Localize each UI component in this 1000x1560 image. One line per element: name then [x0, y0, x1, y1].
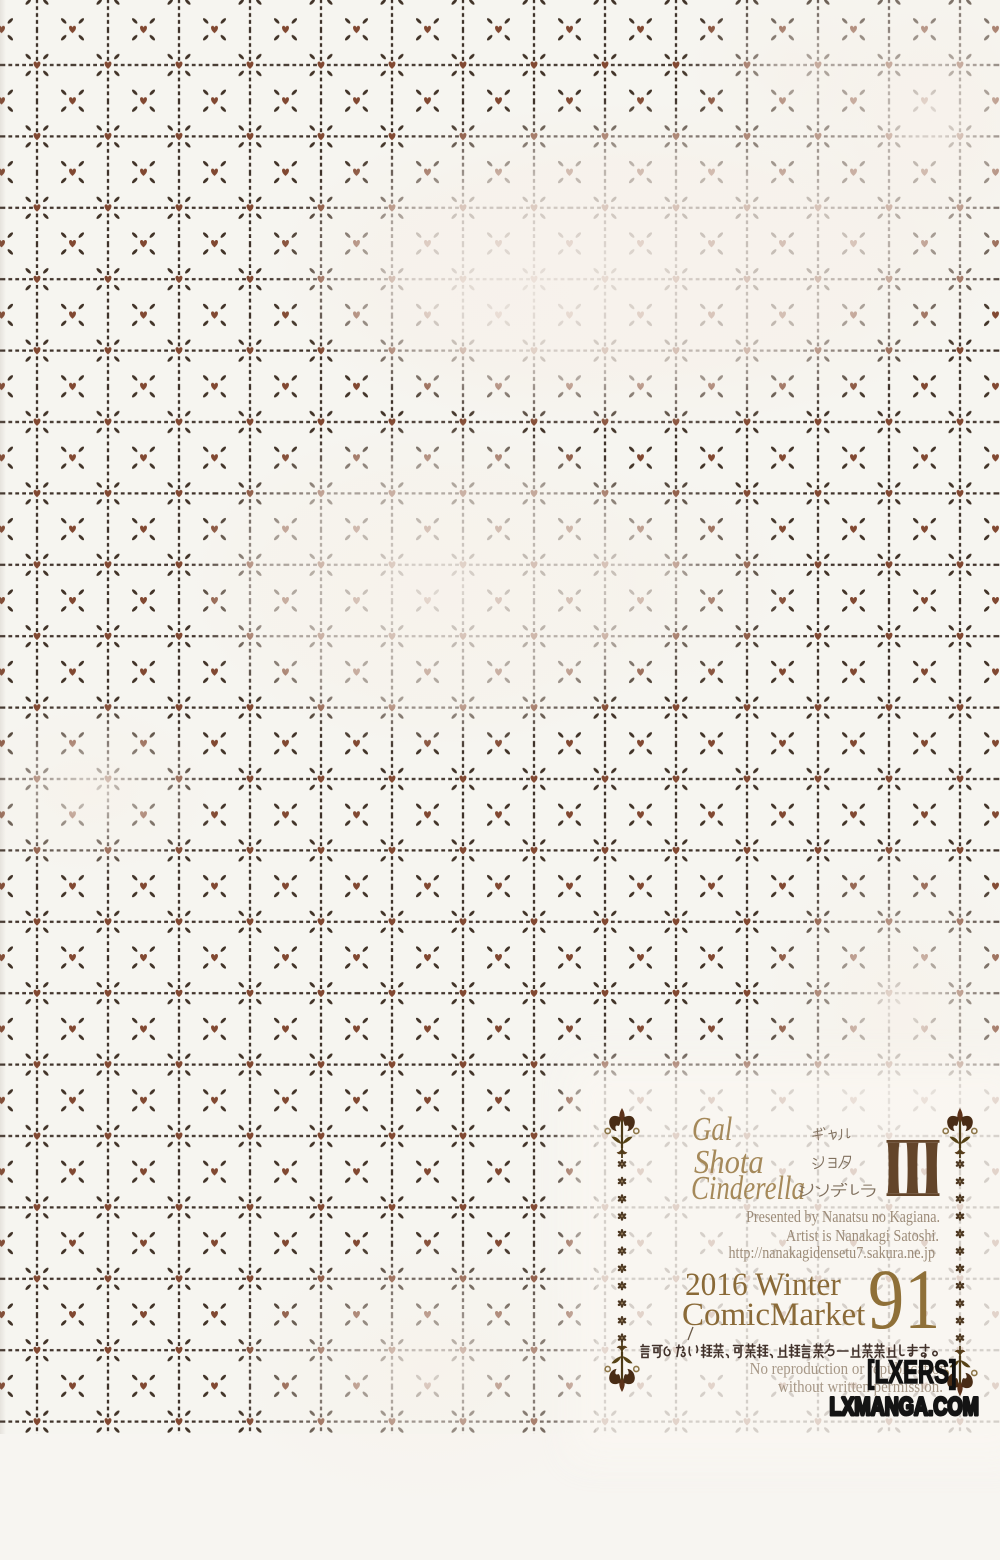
svg-text:[LXERS]: [LXERS]	[867, 1354, 957, 1390]
svg-text:LXMANGA.COM: LXMANGA.COM	[830, 1393, 979, 1421]
